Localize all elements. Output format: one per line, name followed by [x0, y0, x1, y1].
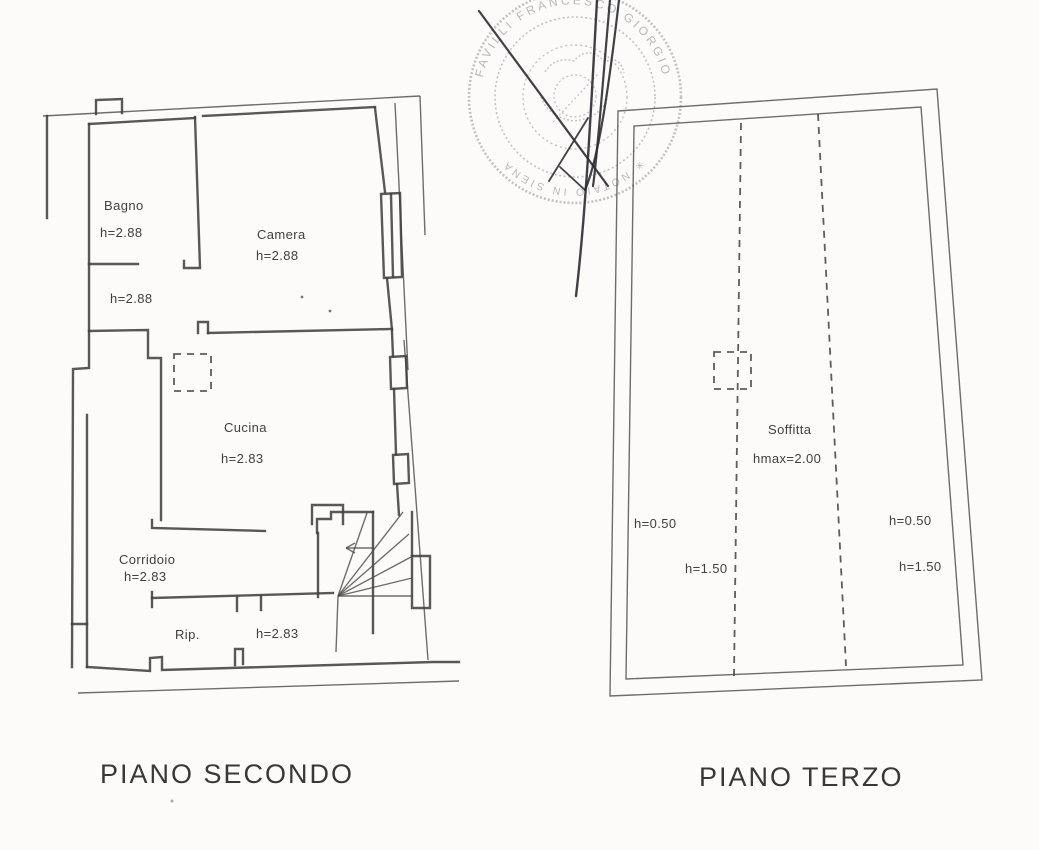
plan-terzo-drawing [610, 89, 982, 696]
room-label-soffitta: Soffitta [768, 423, 811, 436]
room-label-corridoio: Corridoio [119, 553, 175, 566]
plan-title-terzo: PIANO TERZO [699, 764, 904, 791]
height-label-corridoio: h=2.83 [124, 570, 167, 583]
svg-text:FAVILLI FRANCESCO GIORGIO: FAVILLI FRANCESCO GIORGIO [472, 0, 674, 79]
height-label-right-mid: h=1.50 [899, 560, 942, 573]
height-label-left-mid: h=1.50 [685, 562, 728, 575]
floorplan-drawing-svg: FAVILLI FRANCESCO GIORGIO ✳ NOTAIO IN SI… [0, 0, 1039, 850]
room-label-rip: Rip. [175, 628, 200, 641]
height-label-right-eaves: h=0.50 [889, 514, 932, 527]
height-label-bagno: h=2.88 [100, 226, 143, 239]
plan-title-secondo: PIANO SECONDO [100, 761, 354, 788]
notary-stamp: FAVILLI FRANCESCO GIORGIO ✳ NOTAIO IN SI… [469, 0, 681, 203]
stamp-ring-text-top: FAVILLI FRANCESCO GIORGIO [472, 0, 674, 79]
height-label-rip: h=2.83 [256, 627, 299, 640]
room-label-cucina: Cucina [224, 421, 267, 434]
height-label-camera: h=2.88 [256, 249, 299, 262]
room-label-bagno: Bagno [104, 199, 144, 212]
height-label-cucina: h=2.83 [221, 452, 264, 465]
height-label-left-eaves: h=0.50 [634, 517, 677, 530]
stair-direction-arrow [346, 543, 374, 553]
scanned-document-page: FAVILLI FRANCESCO GIORGIO ✳ NOTAIO IN SI… [0, 0, 1039, 850]
height-label-soffitta-max: hmax=2.00 [753, 452, 821, 465]
room-label-camera: Camera [257, 228, 306, 241]
height-label-disimpegno: h=2.88 [110, 292, 153, 305]
